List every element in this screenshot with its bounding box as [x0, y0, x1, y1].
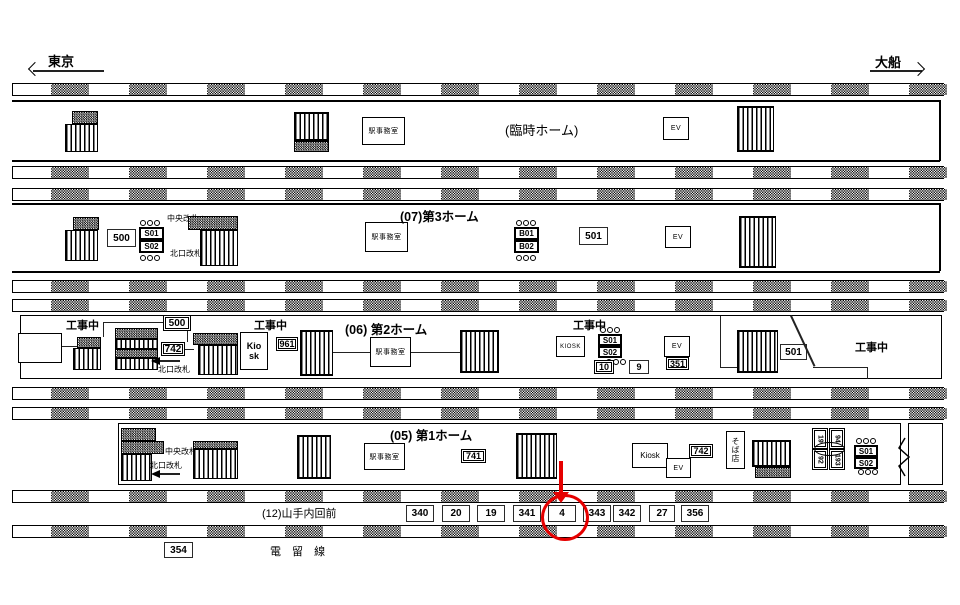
- north-gate-label: 北口改札: [158, 364, 190, 375]
- ad-position-box: 356: [681, 505, 709, 522]
- escalator-icon: [600, 327, 620, 333]
- ad-position-box: 341: [513, 505, 541, 522]
- escalator-b02-box: B02: [514, 240, 539, 253]
- escalator-icon: [140, 255, 160, 261]
- track-line-2: [12, 166, 944, 179]
- kiosk-box: Kio sk: [240, 332, 268, 370]
- station-platform-diagram: 東京 大船 駅事務室 (臨時ホーム) EV 500 S01 S02 中央改札へ …: [0, 0, 960, 605]
- construction-line: [720, 316, 721, 367]
- ad-position-box: 342: [613, 505, 641, 522]
- construction-line: [720, 367, 737, 368]
- direction-right-label: 大船: [875, 52, 901, 71]
- temp-platform-right-edge: [939, 100, 941, 161]
- stairs-icon: [752, 440, 791, 467]
- stairs-icon: [737, 330, 778, 373]
- platform2-left-structure: [18, 333, 62, 363]
- track-line-5: [12, 299, 944, 312]
- stairs-icon: [65, 230, 98, 261]
- soba-shop-box: そば店: [726, 431, 745, 469]
- platform1-outline-continued: [908, 423, 943, 485]
- escalator-icon: [856, 438, 876, 444]
- north-gate-arrow-line: [158, 360, 180, 362]
- direction-left-arrow-line: [33, 70, 104, 72]
- kiosk-box: Kiosk: [632, 443, 668, 468]
- construction-line: [185, 349, 194, 350]
- escalator-s01-box: S01: [598, 334, 622, 346]
- stairs-icon: [115, 328, 158, 339]
- track-line-9: [12, 525, 944, 538]
- platform3-right-edge: [939, 203, 941, 271]
- elevator-box: EV: [666, 458, 691, 478]
- station-office-box: 駅事務室: [370, 337, 411, 367]
- construction-label: 工事中: [855, 339, 888, 355]
- track-line-6: [12, 387, 944, 400]
- ad-position-box: 354: [164, 542, 193, 558]
- stairs-icon: [121, 428, 156, 441]
- yamanote-area-label: (12)山手内回前: [262, 505, 337, 521]
- stairs-icon: [193, 333, 238, 345]
- escalator-icon: [516, 220, 536, 226]
- stairs-icon: [300, 330, 333, 376]
- elevator-box: EV: [663, 117, 689, 140]
- ad-position-box: 500: [107, 229, 136, 247]
- ad-position-box: 19: [477, 505, 505, 522]
- direction-left-arrowhead-icon: [28, 62, 42, 76]
- platform1-title: (05) 第1ホーム: [390, 425, 472, 444]
- escalator-s02-box: S02: [598, 346, 622, 358]
- construction-label: 工事中: [254, 317, 287, 333]
- stairs-icon: [737, 106, 774, 152]
- escalator-icon: [516, 255, 536, 261]
- ad-position-box: 742: [161, 342, 185, 356]
- direction-right-arrowhead-icon: [911, 62, 925, 76]
- escalator-s02-box: S02: [139, 240, 164, 253]
- direction-left-label: 東京: [48, 51, 74, 70]
- stairs-icon: [77, 337, 101, 348]
- temp-platform-title: (臨時ホーム): [505, 120, 578, 139]
- kiosk-label-line2: sk: [249, 351, 259, 361]
- escalator-s02-box: S02: [854, 457, 878, 469]
- ad-position-box: 501: [579, 227, 608, 245]
- stairs-icon: [121, 441, 164, 454]
- track-line-7: [12, 407, 944, 420]
- kiosk-label-line1: Kio: [247, 341, 262, 351]
- stairs-icon: [121, 454, 152, 481]
- ad-position-box: 742: [689, 444, 713, 458]
- stairs-icon: [198, 345, 238, 375]
- construction-line: [411, 352, 460, 353]
- station-office-box: 駅事務室: [364, 443, 405, 470]
- highlight-circle: [541, 494, 589, 541]
- platform3-top-edge: [12, 203, 940, 205]
- stairs-icon: [193, 441, 238, 449]
- station-office-box: 駅事務室: [362, 117, 405, 145]
- stairs-icon: [294, 112, 329, 141]
- elevator-box: EV: [664, 336, 690, 357]
- track-line-4: [12, 280, 944, 293]
- ad-position-box: 27: [649, 505, 675, 522]
- construction-line: [103, 322, 104, 337]
- stairs-icon: [460, 330, 499, 373]
- temp-platform-top-edge: [12, 100, 940, 102]
- platform2-title: (06) 第2ホーム: [345, 319, 427, 338]
- temp-platform-bottom-edge: [12, 160, 940, 162]
- ad-position-box: 351: [666, 357, 689, 370]
- kiosk-box: KIOSK: [556, 336, 585, 357]
- stairs-icon: [188, 216, 238, 230]
- escalator-b01-box: B01: [514, 227, 539, 240]
- track-line-8: [12, 490, 944, 503]
- stairs-icon: [755, 467, 791, 478]
- stairs-icon: [200, 230, 238, 266]
- stairs-icon: [65, 124, 98, 152]
- escalator-icon: [858, 469, 878, 475]
- escalator-s01-box: S01: [854, 445, 878, 457]
- stairs-icon: [73, 217, 99, 230]
- platform3-bottom-edge: [12, 271, 940, 273]
- north-gate-arrow-icon: [151, 470, 160, 478]
- stairs-icon: [516, 433, 557, 479]
- siding-label: 電 留 線: [270, 543, 329, 559]
- escalator-s01-box: S01: [139, 227, 164, 240]
- ad-position-box: 340: [406, 505, 434, 522]
- ad-position-box: 961: [276, 337, 298, 351]
- construction-line: [333, 352, 370, 353]
- platform3-title: (07)第3ホーム: [400, 206, 479, 225]
- platform-break-icon: [896, 437, 912, 477]
- construction-line: [867, 367, 868, 379]
- track-line-1: [12, 83, 944, 96]
- ad-position-box: 500: [163, 315, 191, 331]
- construction-line: [187, 331, 188, 342]
- ad-position-box: 20: [442, 505, 470, 522]
- construction-label: 工事中: [66, 317, 99, 333]
- ad-position-box: 501: [780, 344, 807, 360]
- construction-line: [103, 322, 163, 323]
- elevator-box: EV: [665, 226, 691, 248]
- construction-line: [813, 367, 868, 368]
- ad-position-box: 10: [594, 360, 614, 374]
- ad-position-box: 9: [629, 360, 649, 374]
- stairs-icon: [73, 348, 101, 370]
- stairs-icon: [297, 435, 331, 479]
- track-line-3: [12, 188, 944, 201]
- stairs-icon: [739, 216, 776, 268]
- construction-line: [62, 346, 77, 347]
- station-office-box: 駅事務室: [365, 222, 408, 252]
- highlight-arrow-stem: [559, 461, 563, 492]
- escalator-icon: [140, 220, 160, 226]
- mirror-oval-icon: [814, 442, 845, 456]
- north-gate-label: 北口改札: [170, 248, 202, 259]
- stairs-icon: [115, 339, 158, 349]
- stairs-icon: [294, 141, 329, 152]
- stairs-icon: [72, 111, 98, 124]
- north-gate-arrow-line: [158, 473, 180, 475]
- stairs-icon: [193, 449, 238, 479]
- ad-position-box: 741: [461, 449, 486, 463]
